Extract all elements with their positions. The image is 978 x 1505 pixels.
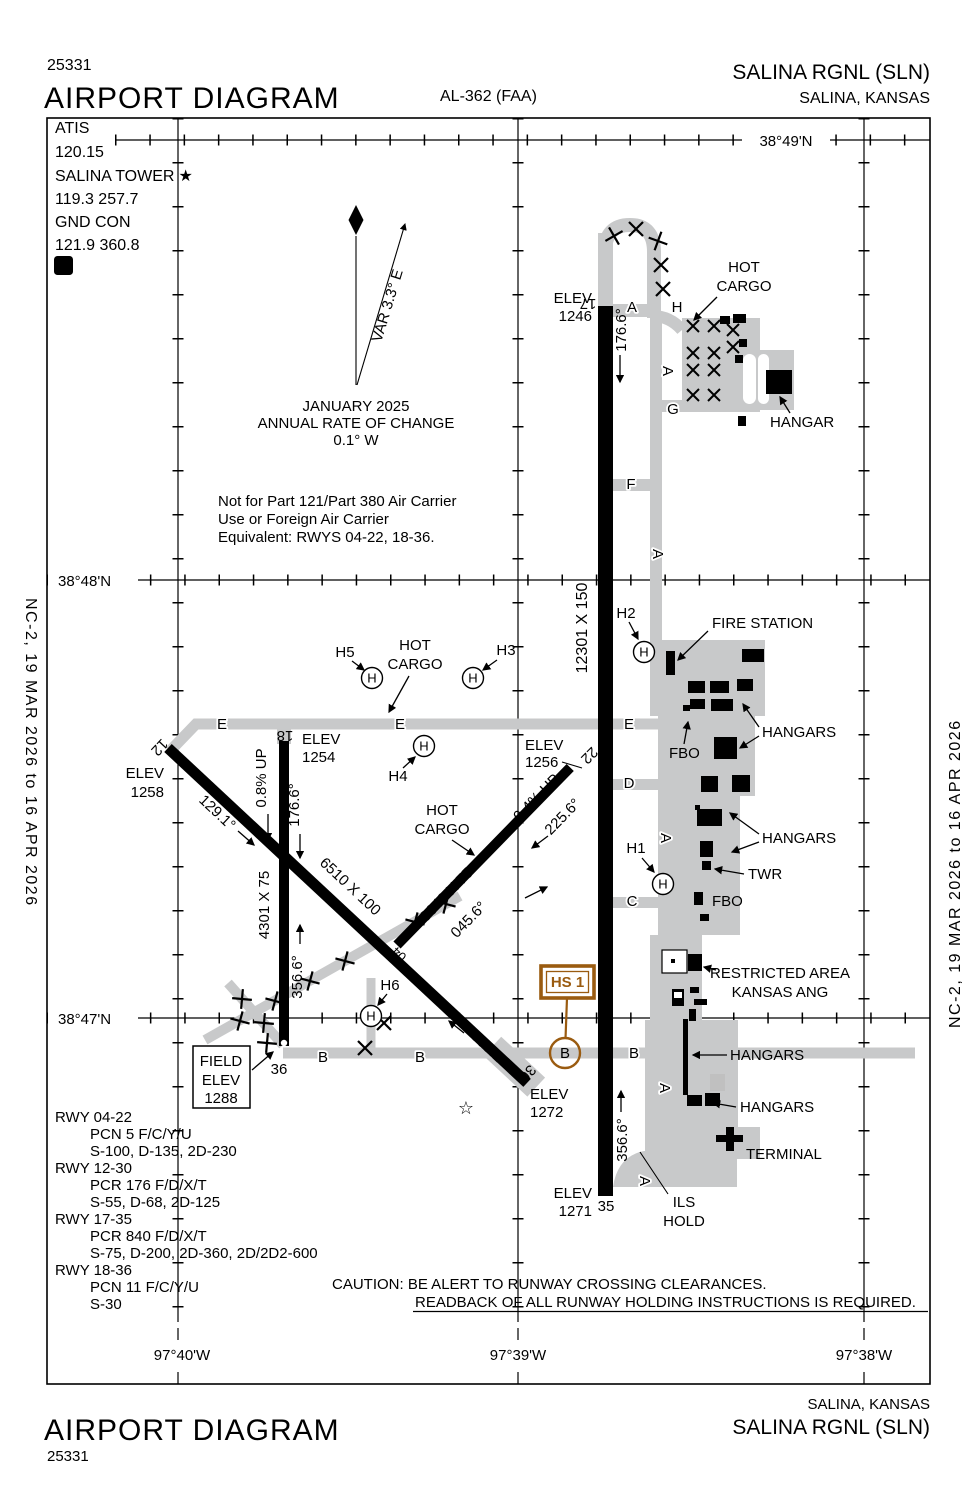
hot-cargo-label-north: HOT CARGO [694,259,772,320]
hot-cargo-label-center: HOT CARGO [414,802,474,855]
page-title: AIRPORT DIAGRAM [44,82,340,115]
city-state-bottom: SALINA, KANSAS [807,1396,930,1413]
ground-frequencies: 121.9 360.8 [55,237,140,254]
runway-18-36-dimensions: 4301 X 75 [256,871,273,939]
longitude-label-97-40: 97°40'W [154,1347,211,1364]
svg-text:HANGAR: HANGAR [770,414,834,431]
ground-control-label: GND CON [55,214,131,231]
runway-35-elev-label: ELEV [554,1185,592,1202]
hangars-label-mid: HANGARS [730,813,836,852]
runway-17-35 [598,306,613,1196]
svg-text:A: A [656,1083,673,1093]
caution-line1: CAUTION: BE ALERT TO RUNWAY CROSSING CLE… [332,1276,767,1293]
svg-text:E: E [395,716,405,733]
runway-30-elev-label: ELEV [530,1086,568,1103]
runway-18-elev-label: ELEV [302,731,340,748]
chart-code-top: 25331 [47,57,92,74]
obstruction-star-icon: ☆ [458,1098,474,1118]
latitude-label-38-48: 38°48'N [58,573,111,590]
clearance-delivery-letter: D [58,258,68,274]
latitude-label-38-49: 38°49'N [759,133,812,150]
airport-name-bottom: SALINA RGNL (SLN) [732,1416,930,1439]
helipad-h4: H H4 [388,736,434,786]
hot-spot-label: HS 1 [551,974,584,991]
runway-35-heading: 356.6° [614,1118,631,1162]
rwy-1836-pcn: PCN 11 F/C/Y/U [90,1279,199,1296]
runway-18-number: 18 [277,727,294,744]
runway-18-elev-value: 1254 [302,749,335,766]
svg-text:RESTRICTED AREA: RESTRICTED AREA [710,965,850,982]
kansas-ang-building [688,954,702,971]
helipad-h3: H H3 [463,642,516,689]
helipad-h6: H H6 [361,977,400,1027]
rwy-0422-id: RWY 04-22 [55,1109,132,1126]
runway-12-elev-value: 1258 [131,784,164,801]
runway-17-35-dimensions: 12301 X 150 [574,583,591,674]
helipad-h-icon: H [366,1009,375,1024]
helipad-h-icon: H [367,671,376,686]
svg-text:H: H [672,299,683,316]
rwy-1836-id: RWY 18-36 [55,1262,132,1279]
latitude-label-38-47: 38°47'N [58,1011,111,1028]
svg-text:TWR: TWR [748,866,782,883]
rwy-1230-id: RWY 12-30 [55,1160,132,1177]
north-arrow-icon [349,205,364,235]
footer: SALINA, KANSAS SALINA RGNL (SLN) AIRPORT… [44,1396,930,1465]
runway-36-end-dot [281,1040,287,1046]
svg-text:HANGARS: HANGARS [730,1047,804,1064]
field-elev-line1: FIELD [200,1053,243,1070]
annual-rate-label: ANNUAL RATE OF CHANGE [258,415,455,432]
page-title-bottom: AIRPORT DIAGRAM [44,1414,340,1447]
svg-text:TERMINAL: TERMINAL [746,1146,822,1163]
helipad-h-icon: H [419,739,428,754]
svg-text:G: G [667,401,679,418]
runway-12-30-dimensions: 6510 X 100 [316,854,384,919]
svg-text:C: C [627,893,638,910]
fbo-building-south [694,892,703,905]
svg-text:HOT: HOT [399,637,431,654]
svg-text:A: A [657,833,674,843]
longitude-label-97-38: 97°38'W [836,1347,893,1364]
airport-name-top: SALINA RGNL (SLN) [732,61,930,84]
svg-text:HANGARS: HANGARS [762,830,836,847]
runway-22-elev-value: 1256 [525,754,558,771]
runway-12-number: 12 [147,735,171,759]
field-elev-value: 1288 [204,1090,237,1107]
header: 25331 AIRPORT DIAGRAM AL-362 (FAA) SALIN… [44,57,930,115]
runway-30-elev-value: 1272 [530,1104,563,1121]
hangar-row-building [683,1019,688,1095]
svg-text:HOT: HOT [728,259,760,276]
runway-36-heading: 356.6° [289,955,306,999]
variation-label: VAR 3.3° E [369,267,407,344]
fire-station-building [666,651,675,675]
svg-text:KANSAS ANG: KANSAS ANG [732,984,829,1001]
note-line-1: Not for Part 121/Part 380 Air Carrier [218,493,456,510]
svg-text:FIRE STATION: FIRE STATION [712,615,813,632]
svg-text:CARGO: CARGO [414,821,469,838]
svg-text:HOT: HOT [426,802,458,819]
carrier-notes: Not for Part 121/Part 380 Air Carrier Us… [218,493,456,546]
hot-cargo-label-west: HOT CARGO [387,637,442,712]
runway-22-elev-label: ELEV [525,737,563,754]
rwy-1735-pcn: PCR 840 F/D/X/T [90,1228,207,1245]
helipad-h5: H H5 [335,644,382,689]
runway-18-heading: 176.6° [286,783,303,827]
restricted-area-label: RESTRICTED AREA KANSAS ANG [704,965,850,1001]
note-line-3: Equivalent: RWYS 04-22, 18-36. [218,529,435,546]
svg-text:B: B [415,1049,425,1066]
hot-spot-taxiway-letter: B [560,1045,570,1062]
runway-36-number: 36 [271,1061,288,1078]
helipad-h-icon: H [658,877,667,892]
svg-text:HANGARS: HANGARS [740,1099,814,1116]
fbo-label-south: FBO [712,893,743,910]
runway-35-elev-value: 1271 [559,1203,592,1220]
svg-text:A: A [627,299,637,316]
rwy-1230-pcn: PCR 176 F/D/X/T [90,1177,207,1194]
tower-frequencies: 119.3 257.7 [55,191,138,208]
rwy-0422-gear: S-100, D-135, 2D-230 [90,1143,237,1160]
svg-text:FBO: FBO [669,745,700,762]
north-arrow-group: VAR 3.3° E JANUARY 2025 ANNUAL RATE OF C… [258,205,455,449]
magvar-date: JANUARY 2025 [302,398,409,415]
helipad-h2: H H2 [616,605,654,663]
svg-text:CARGO: CARGO [716,278,771,295]
svg-text:A: A [659,366,676,376]
longitude-label-97-39: 97°39'W [490,1347,547,1364]
svg-text:D: D [624,775,635,792]
runway-18-gradient: 0.8% UP [253,748,270,807]
caution-line2: READBACK OF ALL RUNWAY HOLDING INSTRUCTI… [415,1294,916,1311]
svg-text:ILS: ILS [673,1194,696,1211]
svg-text:B: B [318,1049,328,1066]
airport-diagram-page: 25331 AIRPORT DIAGRAM AL-362 (FAA) SALIN… [0,0,978,1500]
svg-text:HOLD: HOLD [663,1213,705,1230]
rwy-1735-id: RWY 17-35 [55,1211,132,1228]
atis-label: ATIS [55,120,89,137]
comm-box: ATIS 120.15 SALINA TOWER★ 119.3 257.7 GN… [54,120,193,275]
runway-35-number: 35 [598,1198,615,1215]
rwy-1230-gear: S-55, D-68, 2D-125 [90,1194,220,1211]
svg-text:E: E [217,716,227,733]
svg-text:E: E [624,716,634,733]
helipad-h-icon: H [468,671,477,686]
tower-star-icon: ★ [178,168,192,185]
rwy-1836-gear: S-30 [90,1296,122,1313]
tower-building [702,861,711,870]
fbo-building-north [683,705,690,711]
field-elev-line2: ELEV [202,1072,240,1089]
atis-frequency: 120.15 [55,144,104,161]
helipad-h2-label: H2 [616,605,635,622]
airport-diagram-chart: 25331 AIRPORT DIAGRAM AL-362 (FAA) SALIN… [0,0,978,1500]
helipad-h5-label: H5 [335,644,354,661]
field-elevation-box: FIELD ELEV 1288 [193,1046,273,1108]
chart-code-bottom: 25331 [47,1448,89,1465]
helipad-h3-label: H3 [496,642,515,659]
svg-text:A: A [649,549,666,559]
tower-label: SALINA TOWER★ [55,168,193,185]
helipad-h4-label: H4 [388,768,407,785]
runway-data-table: RWY 04-22 PCN 5 F/C/Y/U S-100, D-135, 2D… [55,1109,318,1313]
helipad-h1-label: H1 [626,840,645,857]
helipad-h6-label: H6 [380,977,399,994]
rwy-1735-gear: S-75, D-200, 2D-360, 2D/2D2-600 [90,1245,318,1262]
runway-12-elev-label: ELEV [126,765,164,782]
svg-text:B: B [629,1045,639,1062]
al-number: AL-362 (FAA) [440,88,537,105]
svg-text:CARGO: CARGO [387,656,442,673]
svg-text:A: A [636,1176,653,1186]
helipad-h-icon: H [639,645,648,660]
svg-text:HANGARS: HANGARS [762,724,836,741]
annual-rate-value: 0.1° W [333,432,379,449]
rwy-0422-pcn: PCN 5 F/C/Y/U [90,1126,192,1143]
right-margin-cycle-note: NC-2, 19 MAR 2026 to 16 APR 2026 [947,719,964,1028]
runway-17-elev-value: 1246 [559,308,592,325]
runway-17-elev-label: ELEV [554,290,592,307]
svg-text:F: F [626,476,635,493]
runway-22-number: 22 [577,743,601,767]
hangar-building [766,370,792,394]
helipads: H H5 H H3 H H4 H H2 H H1 [335,605,673,1027]
city-state-top: SALINA, KANSAS [799,90,930,107]
caution-note: CAUTION: BE ALERT TO RUNWAY CROSSING CLE… [332,1276,928,1312]
runway-22-heading: 225.6° [541,795,584,838]
note-line-2: Use or Foreign Air Carrier [218,511,389,528]
left-margin-cycle-note: NC-2, 19 MAR 2026 to 16 APR 2026 [22,598,39,907]
